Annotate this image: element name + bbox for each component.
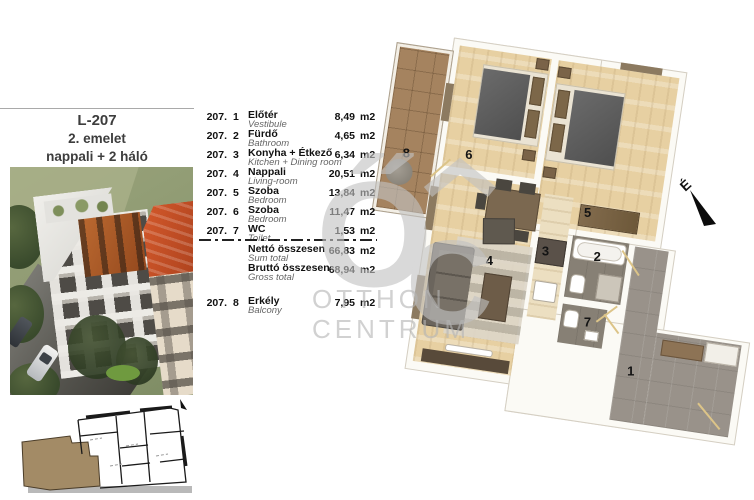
row-index: 6 xyxy=(233,206,245,218)
area-unit: m2 xyxy=(360,149,375,161)
shower xyxy=(595,273,623,302)
washbasin xyxy=(584,330,599,342)
row-index: 3 xyxy=(233,149,245,161)
key-plan-thick-walls xyxy=(86,407,186,466)
row-index: 7 xyxy=(233,225,245,237)
room-label-3: 3 xyxy=(538,243,552,258)
table-row: 207. 6 SzobaBedroom 11,47 m2 xyxy=(199,205,379,224)
nightstand xyxy=(557,66,571,79)
area-value: 4,65 xyxy=(315,130,355,142)
total-value: 68,94 xyxy=(315,264,355,276)
neighbor-facade xyxy=(149,270,193,395)
table-row: 207. 3 Konyha + ÉtkezőKitchen + Dining r… xyxy=(199,148,379,167)
unit-description: nappali + 2 háló xyxy=(0,149,194,164)
room-label-1: 1 xyxy=(624,363,638,378)
row-number: 207. xyxy=(199,111,227,123)
nightstand xyxy=(522,149,536,162)
room-label-5: 5 xyxy=(581,205,595,220)
neighbor-roof xyxy=(141,200,193,281)
totals-separator xyxy=(199,239,377,241)
bed-duvet xyxy=(474,68,530,140)
key-plan xyxy=(20,396,200,500)
key-plan-doors xyxy=(90,438,168,466)
area-value: 8,49 xyxy=(315,111,355,123)
area-value: 7,95 xyxy=(315,297,355,309)
row-index: 8 xyxy=(233,297,245,309)
row-index: 2 xyxy=(233,130,245,142)
area-unit: m2 xyxy=(360,130,375,142)
area-unit: m2 xyxy=(360,264,375,276)
area-unit: m2 xyxy=(360,168,375,180)
area-unit: m2 xyxy=(360,297,375,309)
bed-duvet xyxy=(564,90,624,167)
building-photo xyxy=(10,167,193,395)
room-label-8: 8 xyxy=(399,146,413,161)
area-unit: m2 xyxy=(360,187,375,199)
unit-code: L-207 xyxy=(0,112,194,129)
kitchen-sink xyxy=(532,280,558,303)
table-row-balcony: 207. 8 ErkélyBalcony 7,95 m2 xyxy=(199,296,379,315)
toilet xyxy=(562,309,579,329)
row-number: 207. xyxy=(199,168,227,180)
bush xyxy=(106,365,140,381)
floor-plan: 1 2 3 4 5 6 7 8 xyxy=(345,29,754,454)
row-index: 1 xyxy=(233,111,245,123)
row-index: 5 xyxy=(233,187,245,199)
nightstand xyxy=(535,58,549,71)
area-value: 20,51 xyxy=(315,168,355,180)
row-index: 4 xyxy=(233,168,245,180)
chair xyxy=(495,178,512,191)
room-label-6: 6 xyxy=(462,147,476,162)
armchair xyxy=(483,218,515,244)
area-value: 11,47 xyxy=(315,206,355,218)
north-arrow-icon xyxy=(690,190,716,226)
unit-floor: 2. emelet xyxy=(0,131,194,146)
area-value: 6,34 xyxy=(315,149,355,161)
area-value: 13,84 xyxy=(315,187,355,199)
chair xyxy=(519,182,536,195)
nightstand xyxy=(542,166,556,179)
left-panel: L-207 2. emelet nappali + 2 háló xyxy=(0,0,196,500)
page: { "header": { "unit_code": "L-207", "flo… xyxy=(0,0,754,500)
row-number: 207. xyxy=(199,130,227,142)
north-label: É xyxy=(678,176,694,194)
area-unit: m2 xyxy=(360,225,375,237)
area-value: 1,53 xyxy=(315,225,355,237)
area-unit: m2 xyxy=(360,111,375,123)
orange-accent-box xyxy=(78,212,147,277)
row-number: 207. xyxy=(199,225,227,237)
area-unit: m2 xyxy=(360,245,375,257)
row-number: 207. xyxy=(199,149,227,161)
total-value: 66,83 xyxy=(315,245,355,257)
row-number: 207. xyxy=(199,297,227,309)
room-label-7: 7 xyxy=(580,314,594,329)
area-unit: m2 xyxy=(360,206,375,218)
table-row: 207. 4 NappaliLiving-room 20,51 m2 xyxy=(199,167,379,186)
toilet xyxy=(569,273,587,294)
row-number: 207. xyxy=(199,187,227,199)
room-label-4: 4 xyxy=(482,253,496,268)
row-number: 207. xyxy=(199,206,227,218)
total-row-net: Nettó összesenSum total 66,83 m2 xyxy=(199,244,379,263)
table-row: 207. 5 SzobaBedroom 13,84 m2 xyxy=(199,186,379,205)
room-label-2: 2 xyxy=(590,249,604,264)
car-windshield xyxy=(38,352,52,366)
table-row: 207. 2 FürdőBathroom 4,65 m2 xyxy=(199,129,379,148)
key-plan-highlighted-unit xyxy=(22,436,100,490)
header-divider xyxy=(0,108,194,109)
key-plan-north-arrow-icon xyxy=(180,399,187,410)
table-row: 207. 1 ElőtérVestibule 8,49 m2 xyxy=(199,110,379,129)
total-row-gross: Bruttó összesenGross total 68,94 m2 xyxy=(199,263,379,282)
compass: É xyxy=(678,172,726,232)
